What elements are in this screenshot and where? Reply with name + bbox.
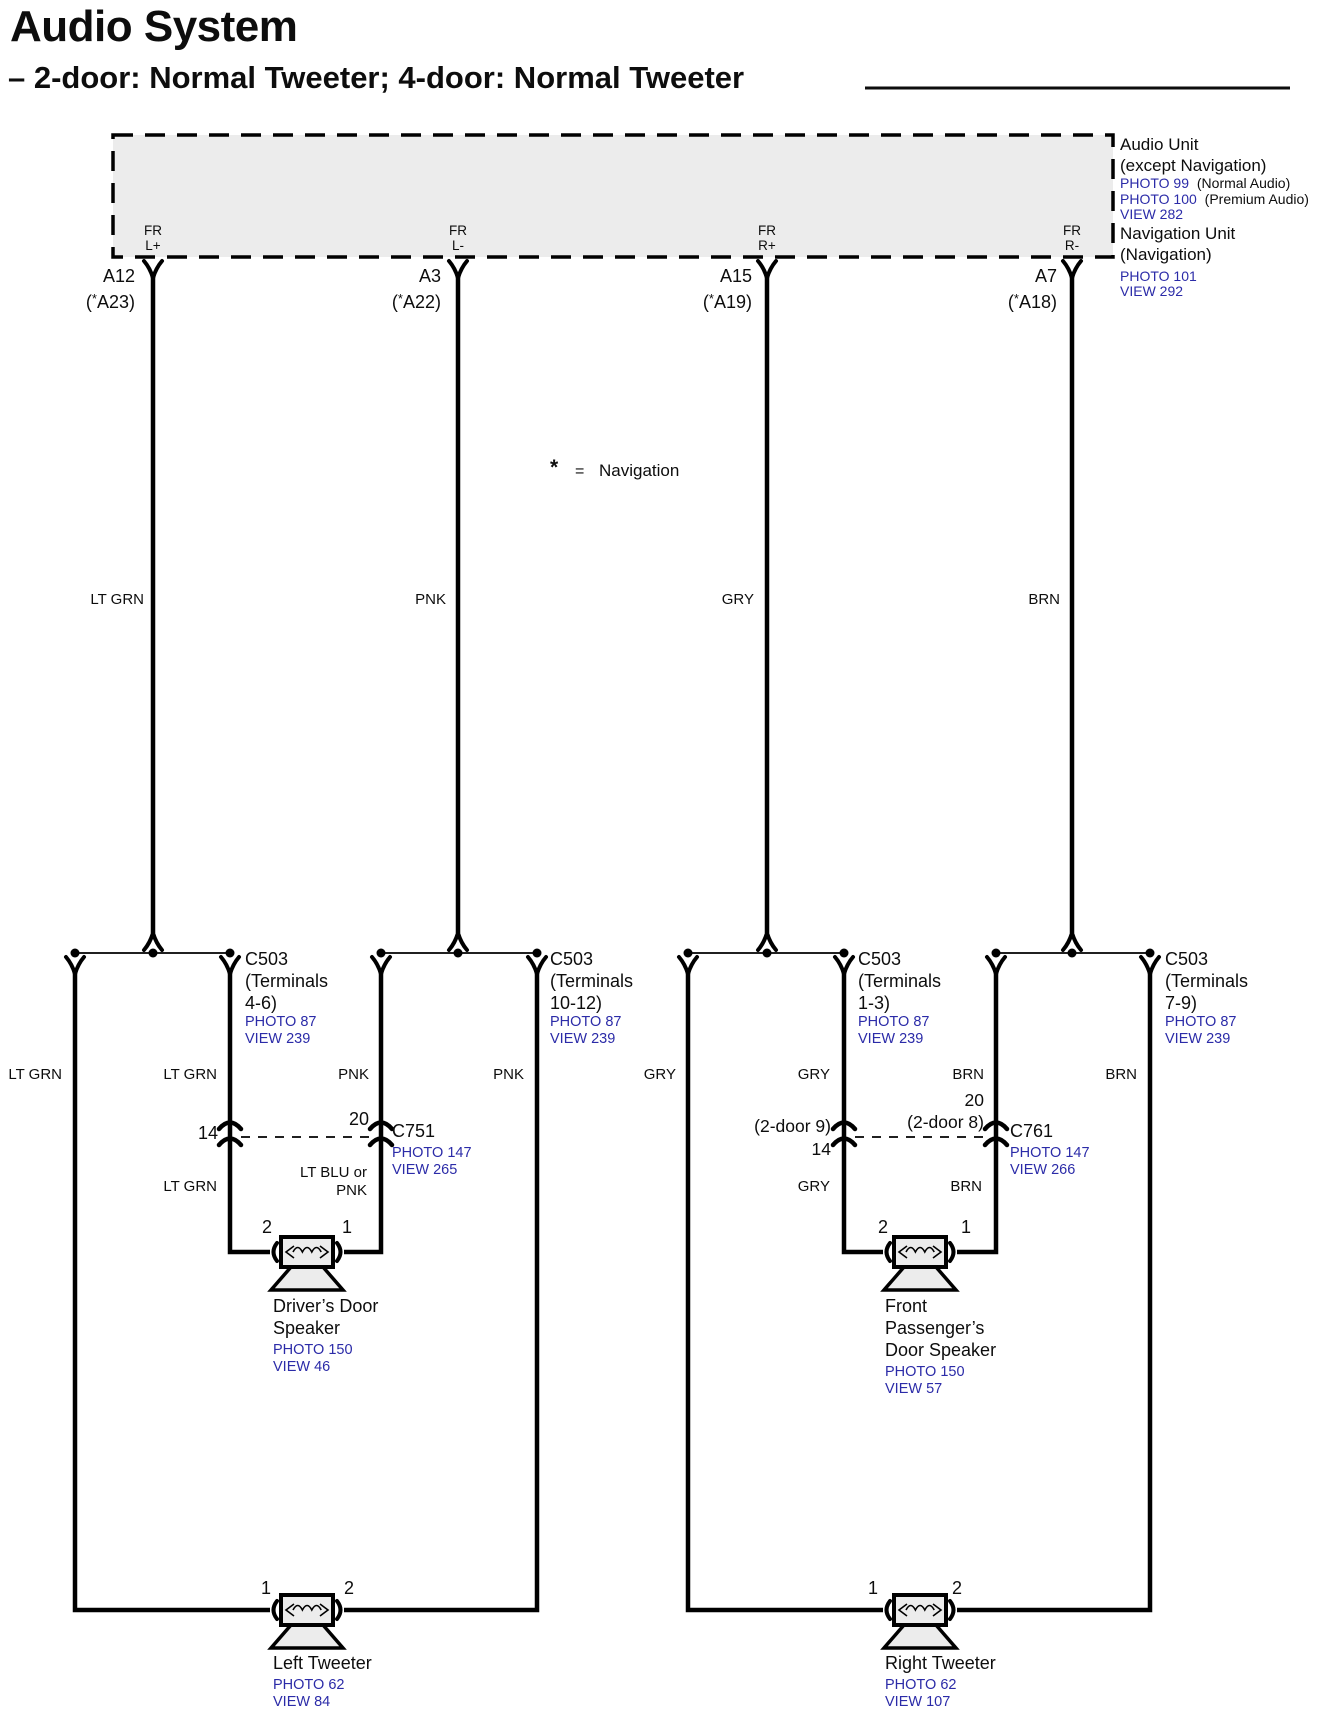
wire-color-label: PNK: [493, 1066, 524, 1083]
wire-color-label: LT GRN: [90, 591, 144, 608]
photo-150-link[interactable]: PHOTO 150: [885, 1364, 996, 1381]
connector-fork-icon: [987, 957, 1005, 974]
c761-terminal-14: (2-door 9) 14: [754, 1115, 831, 1161]
pin-label-a7: A7 (*A18): [1008, 266, 1057, 313]
pin-label-a12: A12 (*A23): [86, 266, 135, 313]
note-equals: =: [575, 463, 584, 481]
connector-fork-icon: [1141, 957, 1159, 974]
connector-fork-icon: [758, 261, 776, 278]
photo-147-link[interactable]: PHOTO 147: [392, 1145, 472, 1162]
wire-color-label: BRN: [1105, 1066, 1137, 1083]
branch-wires: [75, 973, 1150, 1610]
navigation-unit-title: Navigation Unit: [1120, 223, 1309, 244]
photo-87-link[interactable]: PHOTO 87: [550, 1014, 633, 1031]
right-tweeter-terminal-2: 2: [952, 1578, 962, 1599]
wire-color-label: BRN: [1028, 591, 1060, 608]
audio-unit-box: [113, 135, 1113, 257]
view-239-link[interactable]: VIEW 239: [550, 1031, 633, 1048]
fr-label-r-plus: FRR+: [739, 223, 795, 253]
photo-147-link[interactable]: PHOTO 147: [1010, 1145, 1090, 1162]
connector-fork-icon: [449, 933, 467, 950]
note-label: Navigation: [599, 461, 679, 481]
audio-unit-photo-premium-row: PHOTO 100 (Premium Audio): [1120, 192, 1309, 208]
right-tweeter-terminal-1: 1: [868, 1578, 878, 1599]
connector-fork-icon: [144, 261, 162, 278]
photo-150-link[interactable]: PHOTO 150: [273, 1342, 378, 1359]
photo-100-link[interactable]: PHOTO 100: [1120, 191, 1197, 207]
driver-speaker-terminal-1: 1: [342, 1217, 352, 1238]
fr-label-l-minus: FRL-: [430, 223, 486, 253]
view-239-link[interactable]: VIEW 239: [1165, 1031, 1248, 1048]
photo-99-link[interactable]: PHOTO 99: [1120, 175, 1189, 191]
connector-fork-icon: [1063, 261, 1081, 278]
connector-label-c503-2: C503 (Terminals 10-12) PHOTO 87 VIEW 239: [550, 948, 633, 1048]
view-282-link[interactable]: VIEW 282: [1120, 207, 1309, 223]
left-tweeter-terminal-2: 2: [344, 1578, 354, 1599]
connector-fork-icon: [1063, 933, 1081, 950]
connector-fork-icon: [66, 957, 84, 974]
right-tweeter-icon: [884, 1595, 956, 1648]
view-239-link[interactable]: VIEW 239: [858, 1031, 941, 1048]
connector-fork-icon: [528, 957, 546, 974]
wire-color-label: GRY: [798, 1066, 830, 1083]
photo-62-link[interactable]: PHOTO 62: [885, 1677, 996, 1694]
view-265-link[interactable]: VIEW 265: [392, 1162, 457, 1179]
connector-label-c503-3: C503 (Terminals 1-3) PHOTO 87 VIEW 239: [858, 948, 941, 1048]
unit-to-junction-wires: [153, 277, 1072, 933]
c761-name: C761: [1010, 1120, 1053, 1142]
photo-87-link[interactable]: PHOTO 87: [1165, 1014, 1248, 1031]
connector-fork-icon: [679, 957, 697, 974]
left-tweeter-terminal-1: 1: [261, 1578, 271, 1599]
passenger-speaker-terminal-2: 2: [878, 1217, 888, 1238]
connector-fork-icon: [372, 957, 390, 974]
view-57-link[interactable]: VIEW 57: [885, 1381, 996, 1398]
passenger-door-speaker-label: Front Passenger’s Door Speaker PHOTO 150…: [885, 1295, 996, 1398]
wire-color-label: LT GRN: [163, 1178, 217, 1195]
pin-label-a3: A3 (*A22): [392, 266, 441, 313]
view-84-link[interactable]: VIEW 84: [273, 1694, 372, 1711]
photo-100-note: (Premium Audio): [1205, 191, 1309, 207]
page-subtitle: – 2-door: Normal Tweeter; 4-door: Normal…: [8, 60, 744, 96]
fr-label-l-plus: FRL+: [125, 223, 181, 253]
photo-87-link[interactable]: PHOTO 87: [245, 1014, 328, 1031]
connector-fork-icon: [221, 957, 239, 974]
passenger-speaker-terminal-1: 1: [961, 1217, 971, 1238]
photo-99-note: (Normal Audio): [1197, 175, 1290, 191]
navigation-unit-subtitle: (Navigation): [1120, 244, 1309, 265]
note-star: *: [550, 456, 558, 480]
connector-fork-icon: [758, 933, 776, 950]
driver-door-speaker-label: Driver’s Door Speaker PHOTO 150 VIEW 46: [273, 1295, 378, 1376]
audio-unit-label-block: Audio Unit (except Navigation) PHOTO 99 …: [1120, 134, 1309, 300]
connector-fork-icon: [449, 261, 467, 278]
wire-color-label: LT BLU or PNK: [300, 1164, 367, 1200]
audio-unit-title: Audio Unit: [1120, 134, 1309, 155]
passenger-door-speaker-icon: [884, 1237, 956, 1290]
wire-color-label: GRY: [722, 591, 754, 608]
wire-color-label: GRY: [798, 1178, 830, 1195]
audio-unit-photo-normal-row: PHOTO 99 (Normal Audio): [1120, 176, 1309, 192]
wire-color-label: PNK: [415, 591, 446, 608]
left-tweeter-icon: [271, 1595, 343, 1648]
photo-62-link[interactable]: PHOTO 62: [273, 1677, 372, 1694]
connector-label-c503-1: C503 (Terminals 4-6) PHOTO 87 VIEW 239: [245, 948, 328, 1048]
connector-fork-icon: [144, 933, 162, 950]
c751-terminal-14: 14: [198, 1122, 218, 1144]
right-tweeter-label: Right Tweeter PHOTO 62 VIEW 107: [885, 1652, 996, 1711]
wire-color-label: BRN: [952, 1066, 984, 1083]
page-title: Audio System: [10, 2, 297, 52]
connector-fork-icon: [835, 957, 853, 974]
driver-speaker-terminal-2: 2: [262, 1217, 272, 1238]
view-266-link[interactable]: VIEW 266: [1010, 1162, 1075, 1179]
wire-color-label: BRN: [950, 1178, 982, 1195]
photo-101-link[interactable]: PHOTO 101: [1120, 269, 1309, 285]
c751-terminal-20: 20: [349, 1108, 369, 1130]
left-tweeter-label: Left Tweeter PHOTO 62 VIEW 84: [273, 1652, 372, 1711]
driver-door-speaker-icon: [271, 1237, 343, 1290]
view-239-link[interactable]: VIEW 239: [245, 1031, 328, 1048]
wire-color-label: PNK: [338, 1066, 369, 1083]
pin-label-a15: A15 (*A19): [703, 266, 752, 313]
c761-terminal-20: 20 (2-door 8): [907, 1089, 984, 1133]
wire-color-label: LT GRN: [8, 1066, 62, 1083]
view-107-link[interactable]: VIEW 107: [885, 1694, 996, 1711]
view-46-link[interactable]: VIEW 46: [273, 1359, 378, 1376]
audio-unit-subtitle: (except Navigation): [1120, 155, 1309, 176]
wire-color-label: LT GRN: [163, 1066, 217, 1083]
photo-87-link[interactable]: PHOTO 87: [858, 1014, 941, 1031]
view-292-link[interactable]: VIEW 292: [1120, 284, 1309, 300]
c751-name: C751: [392, 1120, 435, 1142]
wiring-diagram-page: Audio System – 2-door: Normal Tweeter; 4…: [0, 0, 1334, 1719]
wire-right-tweeter-1: [688, 973, 883, 1610]
fr-label-r-minus: FRR-: [1044, 223, 1100, 253]
wire-color-label: GRY: [644, 1066, 676, 1083]
connector-label-c503-4: C503 (Terminals 7-9) PHOTO 87 VIEW 239: [1165, 948, 1248, 1048]
